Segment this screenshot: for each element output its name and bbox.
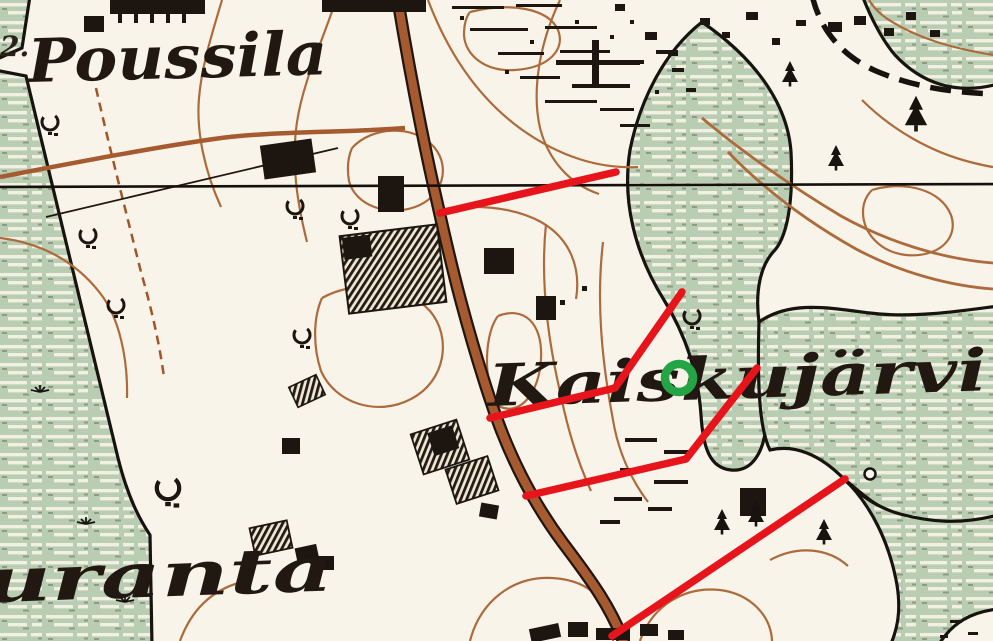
shore-ring-symbol [865, 469, 876, 480]
historic-map-canvas: Poussila Kaiskujärvi uranta 2. [0, 0, 993, 641]
map-viewport: Poussila Kaiskujärvi uranta 2. [0, 0, 993, 641]
label-margin-mark: 2. [0, 30, 29, 63]
label-uranta: uranta [0, 532, 334, 617]
label-poussila: Poussila [24, 19, 328, 97]
